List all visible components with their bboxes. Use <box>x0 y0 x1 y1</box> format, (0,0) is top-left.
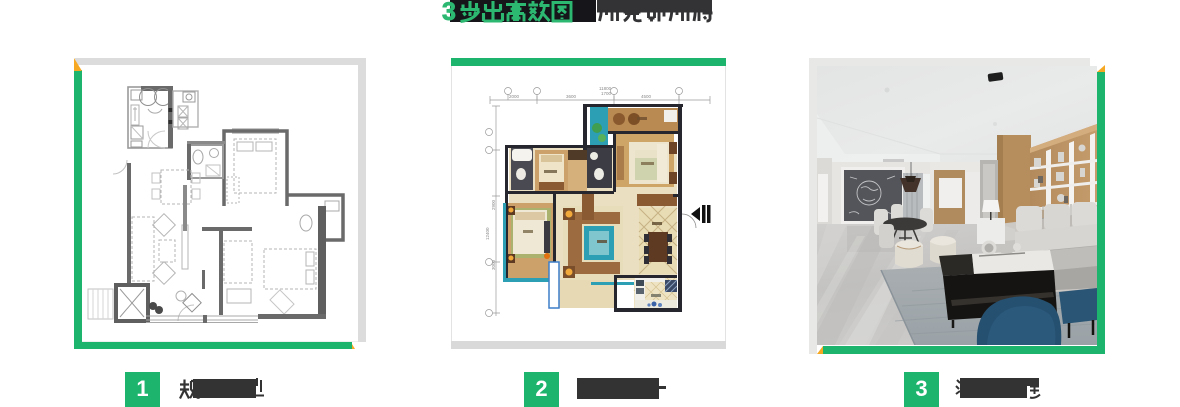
svg-text:3000: 3000 <box>491 259 496 270</box>
svg-text:12400: 12400 <box>485 227 490 240</box>
svg-text:4500: 4500 <box>641 94 652 99</box>
svg-text:11800: 11800 <box>599 86 612 91</box>
svg-text:1700: 1700 <box>601 91 612 96</box>
svg-text:2000: 2000 <box>509 94 520 99</box>
svg-text:3: 3 <box>442 0 456 26</box>
svg-text:2900: 2900 <box>491 199 496 210</box>
svg-text:3600: 3600 <box>566 94 577 99</box>
